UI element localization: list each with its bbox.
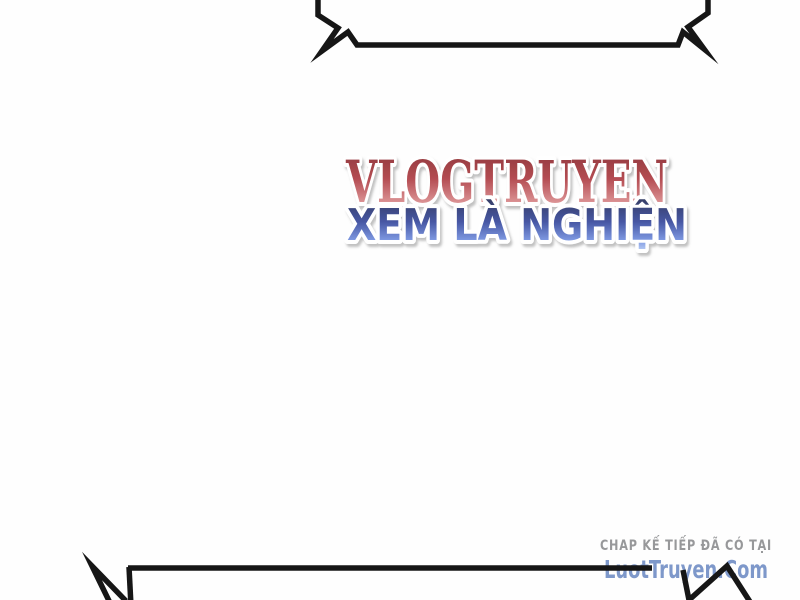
bottom-bubble-left-edge [129,567,131,600]
comic-page: VLOGTRUYEN XEM LÀ NGHIỆN CHAP KẾ TIẾP ĐÃ… [0,0,800,600]
watermark-logo: VLOGTRUYEN XEM LÀ NGHIỆN [345,148,687,251]
footer-next-chapter-note: CHAP KẾ TIẾP ĐÃ CÓ TẠI [600,535,772,554]
top-speech-bubble [318,0,708,51]
bottom-bubble-left-spike [92,566,126,600]
watermark-subtitle: XEM LÀ NGHIỆN [347,198,687,251]
comic-artwork: VLOGTRUYEN XEM LÀ NGHIỆN CHAP KẾ TIẾP ĐÃ… [0,0,800,600]
